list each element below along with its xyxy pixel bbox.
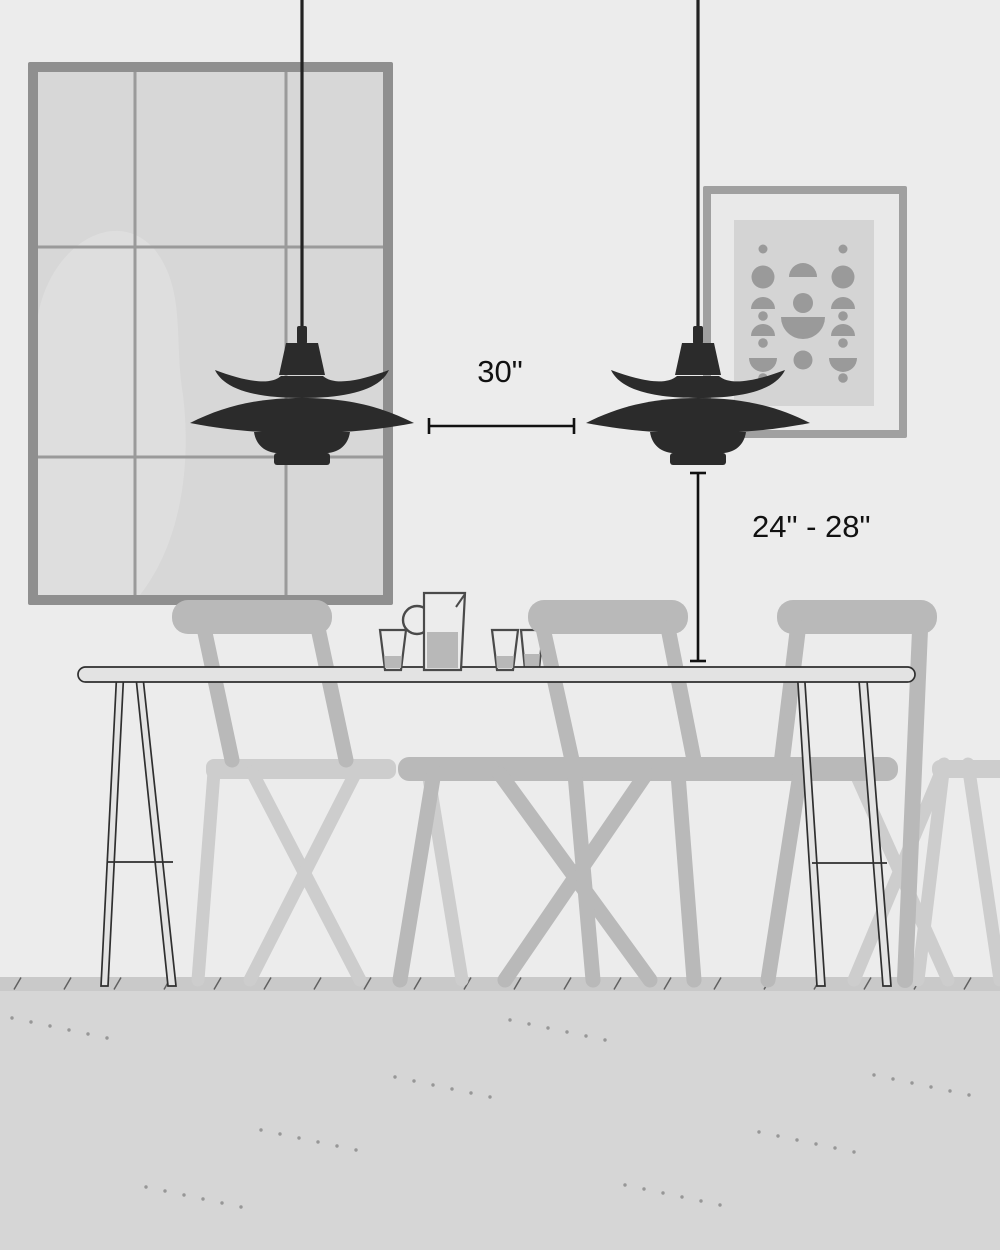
artwork-print — [734, 220, 874, 406]
room-illustration: 30" 24" - 28" — [0, 0, 1000, 1250]
glass-2 — [492, 630, 518, 670]
window — [28, 62, 393, 605]
spacing-dimension-label: 30" — [477, 354, 523, 389]
pitcher-liquid — [427, 632, 458, 668]
height-dimension-label: 24" - 28" — [752, 509, 871, 544]
window-curtain — [38, 231, 186, 595]
floor-surface — [0, 991, 1000, 1250]
illustration-canvas: 30" 24" - 28" — [0, 0, 1000, 1250]
floor — [0, 977, 1000, 1250]
glass-1 — [380, 630, 406, 670]
